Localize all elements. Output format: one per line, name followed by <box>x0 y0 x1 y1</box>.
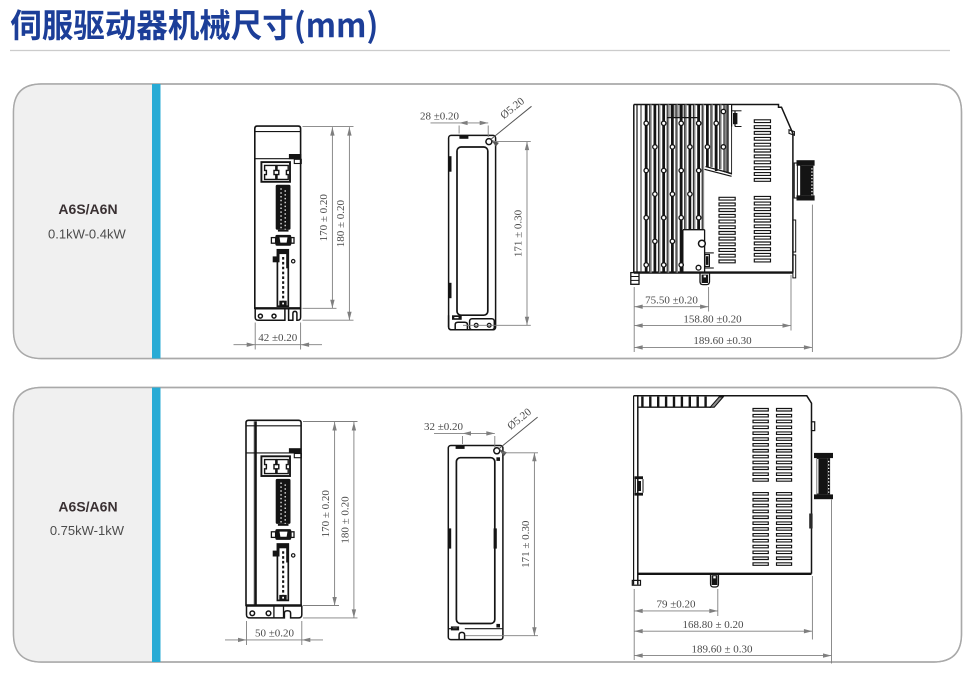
svg-text:42 ±0.20: 42 ±0.20 <box>258 332 298 344</box>
svg-text:50 ±0.20: 50 ±0.20 <box>255 627 295 639</box>
svg-text:189.60 ±0.30: 189.60 ±0.30 <box>693 335 752 347</box>
svg-text:28 ±0.20: 28 ±0.20 <box>420 111 460 123</box>
svg-text:180 ± 0.20: 180 ± 0.20 <box>335 200 347 248</box>
svg-text:180 ± 0.20: 180 ± 0.20 <box>340 496 352 544</box>
svg-text:A6S/A6N: A6S/A6N <box>58 499 117 515</box>
svg-text:170 ± 0.20: 170 ± 0.20 <box>318 194 330 242</box>
svg-text:158.80 ±0.20: 158.80 ±0.20 <box>683 313 742 325</box>
svg-text:0.75kW-1kW: 0.75kW-1kW <box>50 523 125 538</box>
svg-text:170 ± 0.20: 170 ± 0.20 <box>320 490 332 538</box>
svg-text:168.80 ± 0.20: 168.80 ± 0.20 <box>682 619 744 631</box>
svg-text:0.1kW-0.4kW: 0.1kW-0.4kW <box>48 227 127 242</box>
svg-text:189.60 ± 0.30: 189.60 ± 0.30 <box>691 643 753 655</box>
svg-text:79 ±0.20: 79 ±0.20 <box>656 599 696 611</box>
svg-text:75.50 ±0.20: 75.50 ±0.20 <box>645 295 698 307</box>
svg-text:171 ± 0.30: 171 ± 0.30 <box>520 520 532 568</box>
svg-text:171 ± 0.30: 171 ± 0.30 <box>513 209 525 257</box>
svg-text:32 ±0.20: 32 ±0.20 <box>424 421 464 433</box>
svg-text:A6S/A6N: A6S/A6N <box>58 201 117 217</box>
